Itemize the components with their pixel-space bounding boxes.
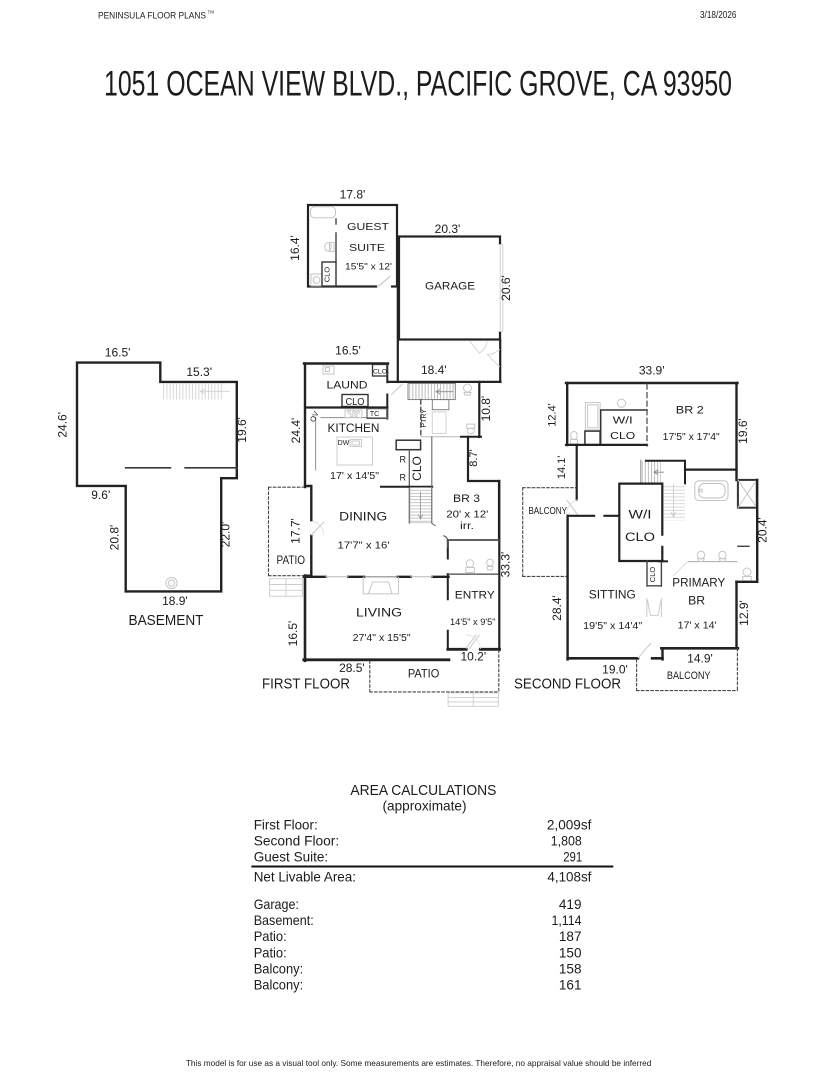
svg-text:16.4': 16.4' [288, 235, 302, 261]
svg-text:BR 3: BR 3 [453, 493, 480, 505]
svg-text:1051 OCEAN VIEW BLVD., PACIFIC: 1051 OCEAN VIEW BLVD., PACIFIC GROVE, CA… [104, 65, 732, 104]
svg-text:R: R [400, 455, 407, 465]
svg-text:LIVING: LIVING [356, 608, 402, 620]
svg-text:GARAGE: GARAGE [425, 281, 475, 293]
svg-text:Balcony:: Balcony: [254, 961, 304, 977]
svg-text:17.7': 17.7' [289, 518, 303, 544]
svg-text:419: 419 [559, 896, 582, 912]
svg-text:2,009sf: 2,009sf [547, 817, 592, 833]
svg-text:4,108sf: 4,108sf [547, 869, 591, 885]
svg-text:161: 161 [559, 977, 582, 993]
svg-text:CLO: CLO [625, 532, 655, 544]
svg-text:Second Floor:: Second Floor: [254, 833, 340, 849]
svg-text:First Floor:: First Floor: [254, 817, 318, 833]
svg-text:28.4': 28.4' [550, 595, 564, 621]
svg-text:KITCHEN: KITCHEN [328, 423, 380, 435]
svg-text:22.0': 22.0' [219, 522, 233, 548]
svg-text:24.4': 24.4' [289, 418, 303, 444]
svg-text:150: 150 [559, 945, 582, 961]
svg-text:irr.: irr. [460, 521, 474, 532]
svg-text:BR: BR [688, 596, 705, 608]
svg-text:12.4': 12.4' [547, 403, 559, 427]
svg-text:12.9': 12.9' [737, 600, 751, 626]
svg-text:20' x 12': 20' x 12' [446, 510, 488, 521]
svg-text:CLO: CLO [373, 368, 387, 375]
svg-text:14'5" x 9'5": 14'5" x 9'5" [450, 617, 496, 628]
svg-text:187: 187 [559, 928, 582, 944]
svg-text:BR 2: BR 2 [676, 404, 704, 416]
svg-text:W/I: W/I [613, 415, 633, 426]
svg-text:33.9': 33.9' [639, 364, 665, 378]
svg-text:CLO: CLO [610, 431, 635, 442]
svg-text:20.3': 20.3' [435, 222, 461, 236]
svg-text:3/18/2026: 3/18/2026 [700, 10, 737, 21]
svg-text:LAUND: LAUND [327, 380, 368, 392]
svg-text:W/I: W/I [629, 510, 652, 522]
svg-text:16.5': 16.5' [335, 344, 361, 358]
svg-text:1,808: 1,808 [551, 833, 582, 849]
svg-text:PATIO: PATIO [277, 555, 306, 567]
svg-text:CLO: CLO [346, 396, 365, 408]
svg-text:PTRY: PTRY [421, 409, 428, 428]
svg-text:TC: TC [370, 411, 379, 418]
svg-text:SITTING: SITTING [589, 589, 636, 601]
svg-text:DINING: DINING [339, 511, 387, 523]
svg-text:33.3': 33.3' [499, 552, 513, 578]
svg-text:10.8': 10.8' [479, 396, 493, 422]
svg-text:Garage:: Garage: [254, 896, 299, 912]
svg-text:Guest Suite:: Guest Suite: [254, 849, 329, 865]
svg-text:18.4': 18.4' [421, 363, 447, 377]
svg-text:Balcony:: Balcony: [254, 977, 304, 993]
svg-text:SECOND FLOOR: SECOND FLOOR [514, 677, 621, 693]
svg-text:8.7': 8.7' [468, 449, 480, 466]
svg-text:DW: DW [338, 440, 350, 447]
svg-text:20.8': 20.8' [108, 525, 122, 551]
svg-text:16.5': 16.5' [105, 346, 131, 360]
svg-text:GUEST: GUEST [347, 221, 390, 233]
svg-text:CLO: CLO [648, 567, 657, 583]
svg-text:19'5" x 14'4": 19'5" x 14'4" [583, 621, 642, 632]
svg-text:9.6': 9.6' [91, 488, 110, 502]
svg-text:SUITE: SUITE [349, 242, 385, 254]
svg-text:Patio:: Patio: [254, 945, 287, 961]
svg-text:16.5': 16.5' [286, 621, 300, 647]
svg-text:BALCONY: BALCONY [667, 670, 711, 682]
svg-text:Basement:: Basement: [254, 912, 314, 928]
svg-text:14.1': 14.1' [556, 456, 568, 480]
svg-text:R: R [400, 473, 407, 483]
svg-text:PATIO: PATIO [408, 668, 440, 680]
svg-text:17' x 14'5": 17' x 14'5" [330, 471, 379, 482]
svg-text:CLO: CLO [323, 267, 332, 283]
svg-text:291: 291 [563, 849, 582, 865]
svg-text:1,114: 1,114 [552, 912, 582, 928]
svg-text:10.2': 10.2' [460, 650, 486, 664]
svg-text:Net Livable Area:: Net Livable Area: [254, 869, 356, 885]
svg-text:19.6': 19.6' [736, 418, 750, 444]
svg-text:17' x 14': 17' x 14' [678, 621, 717, 632]
svg-text:19.6': 19.6' [235, 417, 249, 443]
svg-text:20.4': 20.4' [756, 517, 770, 543]
svg-text:14.9': 14.9' [687, 651, 713, 665]
svg-text:Patio:: Patio: [254, 928, 287, 944]
svg-text:15'5" x 12': 15'5" x 12' [345, 262, 392, 272]
svg-text:27'4" x 15'5": 27'4" x 15'5" [353, 633, 411, 644]
svg-text:FIRST FLOOR: FIRST FLOOR [262, 677, 350, 693]
svg-text:(approximate): (approximate) [383, 798, 467, 814]
svg-text:24.6': 24.6' [56, 412, 70, 438]
svg-text:This model is for use as a vis: This model is for use as a visual tool o… [186, 1058, 652, 1068]
svg-text:17.8': 17.8' [340, 188, 366, 202]
svg-text:20.6': 20.6' [499, 275, 513, 301]
svg-text:15.3': 15.3' [186, 365, 212, 379]
svg-text:17'7" x 16': 17'7" x 16' [338, 541, 390, 552]
svg-text:18.9': 18.9' [162, 594, 188, 608]
svg-text:CLO: CLO [410, 456, 424, 481]
svg-text:TM: TM [208, 10, 215, 15]
svg-text:AREA CALCULATIONS: AREA CALCULATIONS [350, 782, 496, 799]
svg-text:17'5" x 17'4": 17'5" x 17'4" [663, 432, 720, 443]
svg-text:PRIMARY: PRIMARY [672, 578, 725, 590]
svg-text:28.5': 28.5' [339, 661, 365, 675]
svg-text:ENTRY: ENTRY [455, 589, 496, 601]
svg-text:19.0': 19.0' [602, 663, 628, 677]
svg-text:158: 158 [559, 961, 582, 977]
svg-text:OV: OV [308, 410, 321, 424]
svg-text:PENINSULA FLOOR PLANS: PENINSULA FLOOR PLANS [98, 11, 206, 21]
svg-text:BASEMENT: BASEMENT [129, 613, 204, 629]
svg-text:BALCONY: BALCONY [528, 505, 567, 517]
